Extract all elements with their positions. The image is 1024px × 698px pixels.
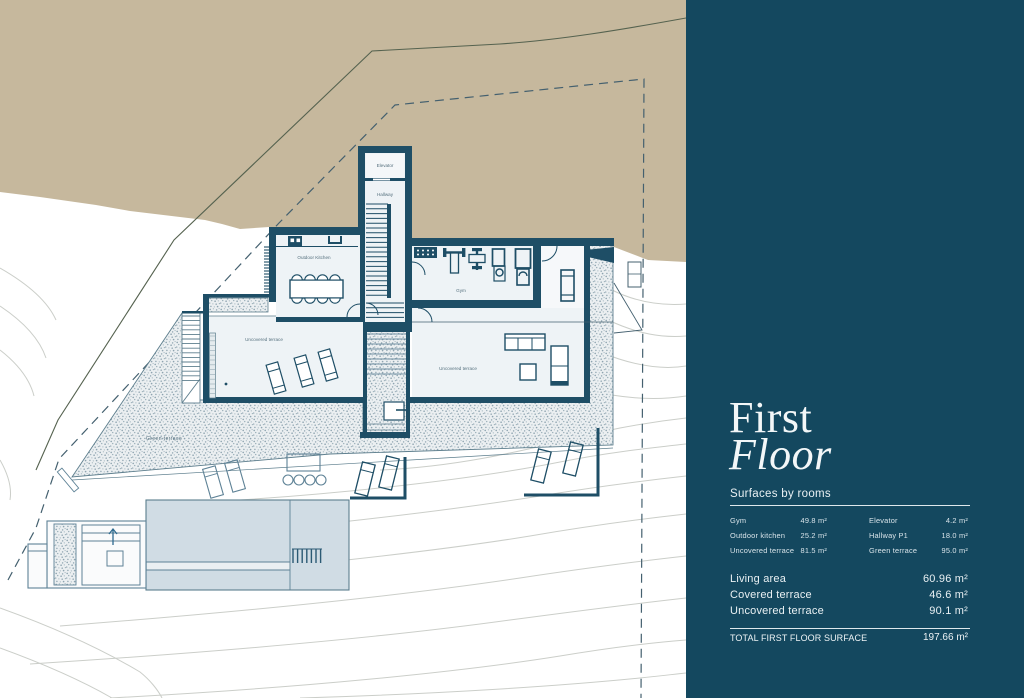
svg-text:Gym: Gym [456, 288, 466, 293]
svg-text:Elevator: Elevator [377, 163, 394, 168]
svg-text:Outdoor Kitchen: Outdoor Kitchen [297, 255, 331, 260]
svg-text:Uncovered terrace: Uncovered terrace [439, 366, 477, 371]
svg-text:Uncovered terrace: Uncovered terrace [245, 337, 283, 342]
svg-text:Hallway: Hallway [377, 192, 394, 197]
svg-text:Green terrace: Green terrace [146, 436, 182, 442]
